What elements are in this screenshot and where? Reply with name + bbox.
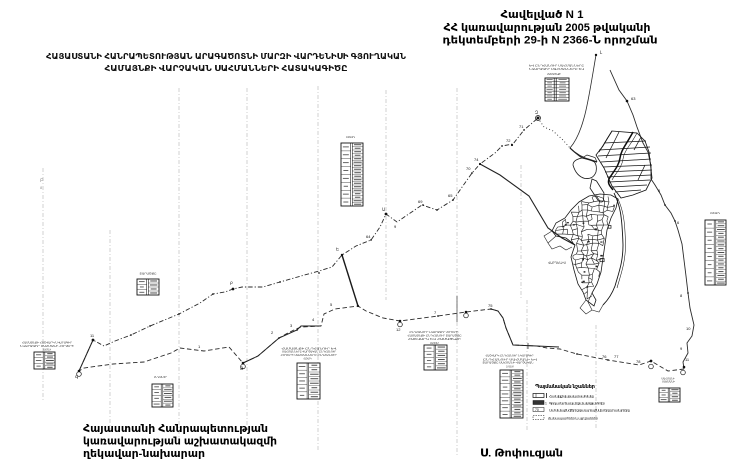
svg-text:70: 70 — [535, 408, 539, 412]
svg-text:64: 64 — [366, 234, 371, 239]
svg-text:76: 76 — [602, 354, 607, 359]
svg-text:Գ: Գ — [75, 375, 78, 380]
svg-text:կառավարության աշխատակազմի: կառավարության աշխատակազմի — [83, 436, 277, 448]
svg-text:ԸՆԴՀԱՆՈՒՐ: ԸՆԴՀԱՆՈՒՐ — [506, 364, 514, 368]
svg-text:70: 70 — [466, 166, 471, 171]
svg-text:75: 75 — [488, 303, 493, 308]
svg-text:ՎԱՐԴԵՆԻՍ: ՎԱՐԴԵՆԻՍ — [548, 261, 567, 265]
svg-text:ԸՆԴՀԱՆՈՒՐ: ԸՆԴՀԱՆՈՒՐ — [154, 375, 167, 379]
svg-text:ՍԱՀՄԱՆԻ: ՍԱՀՄԱՆԻ — [43, 348, 51, 352]
svg-text:ՀԱՅԱՍՏԱՆԻ ՀԱՆՐԱՊԵՏՈՒԹՅԱՆ ԱՐԱԳԱ: ՀԱՅԱՍՏԱՆԻ ՀԱՆՐԱՊԵՏՈՒԹՅԱՆ ԱՐԱԳԱԾՈՏՆԻ ՄԱՐԶ… — [46, 52, 406, 61]
svg-text:ՀԱՇՎԱՐԿ: ՀԱՇՎԱՐԿ — [346, 135, 355, 139]
svg-text:1: 1 — [545, 402, 547, 406]
svg-text:Զ: Զ — [535, 110, 538, 115]
svg-text:10: 10 — [686, 326, 691, 331]
svg-text:71: 71 — [519, 124, 524, 129]
svg-text:ՏԱՐԱԾՔԸ ՍԱՀՄԱՆԻ ՎԱՐՉԱԿԱՆ: ՏԱՐԱԾՔԸ ՍԱՀՄԱՆԻ ՎԱՐՉԱԿԱՆ — [483, 361, 534, 365]
svg-text:9: 9 — [394, 224, 397, 229]
svg-text:11: 11 — [685, 357, 690, 362]
svg-text:ՀԱՄԱՅՆՔԻ ՀԱՇՎԱՐԿ ՆԿԱՐԱԳԻՐ: ՀԱՄԱՅՆՔԻ ՀԱՇՎԱՐԿ ՆԿԱՐԱԳԻՐ — [22, 341, 72, 345]
svg-text:ՏԱՐԱԾՔԸ: ՏԱՐԱԾՔԸ — [140, 271, 157, 275]
svg-text:6: 6 — [677, 220, 680, 225]
svg-text:Գյուղատնտեսական նշանակության հ: Գյուղատնտեսական նշանակության հողեր — [549, 402, 605, 406]
svg-text:65: 65 — [448, 193, 453, 198]
svg-text:ՀԱՇՎԱՐԿ ԵՎ ՀԱՄԱՅՆՔԻ: ՀԱՇՎԱՐԿ ԵՎ ՀԱՄԱՅՆՔԻ — [408, 337, 461, 341]
svg-text:72: 72 — [506, 138, 511, 143]
svg-text:1: 1 — [198, 344, 201, 349]
svg-text:Բ: Բ — [230, 281, 233, 286]
svg-text:ՀՀ կառավարության 2005 թվականի: ՀՀ կառավարության 2005 թվականի — [444, 22, 651, 34]
svg-text:8: 8 — [40, 185, 43, 190]
svg-text:ղեկավար-նախարար: ղեկավար-նախարար — [83, 448, 205, 460]
svg-text:77: 77 — [614, 354, 619, 359]
svg-text:5: 5 — [658, 188, 661, 193]
svg-text:11: 11 — [90, 333, 95, 338]
svg-text:Ա: Ա — [382, 207, 385, 212]
svg-text:4: 4 — [312, 317, 315, 322]
svg-text:Հավելված N 1: Հավելված N 1 — [501, 9, 584, 21]
svg-text:ՍԱՀՄԱՆԻ: ՍԱՀՄԱՆԻ — [430, 341, 439, 345]
svg-text:ՀԱՇՎԱՐԿ ԸՆԴՀԱՆՈՒՐ ՆԿԱՐԱԳԻՐ: ՀԱՇՎԱՐԿ ԸՆԴՀԱՆՈՒՐ ՆԿԱՐԱԳԻՐ — [486, 354, 534, 358]
svg-text:ՀԱՇՎԱՐԿ: ՀԱՇՎԱՐԿ — [710, 211, 720, 215]
svg-text:Լ: Լ — [600, 50, 603, 55]
svg-text:ԸՆԴՀԱՆՈՒՐ ՆԿԱՐԱԳԻՐ ՀՈՂԵՐԻ: ԸՆԴՀԱՆՈՒՐ ՆԿԱՐԱԳԻՐ ՀՈՂԵՐԻ — [410, 330, 459, 334]
svg-text:Սահմանային գծերի շրջադարձային: Սահմանային գծերի շրջադարձային կետերը և հ… — [549, 409, 630, 413]
svg-text:ԵՎ ԸՆԴՀԱՆՈՒՐ ՍԱՀՄԱՆՆԵՐԸ: ԵՎ ԸՆԴՀԱՆՈՒՐ ՍԱՀՄԱՆՆԵՐԸ — [529, 64, 584, 68]
svg-text:Ճանապարհներ և այլ նշաններ: Ճանապարհներ և այլ նշաններ — [548, 417, 598, 421]
svg-text:Թ: Թ — [240, 366, 244, 371]
svg-text:ՆԿԱՐԱԳԻՐ ՍԱՀՄԱՆԻ ՀՈՂԵՐԻ: ՆԿԱՐԱԳԻՐ ՍԱՀՄԱՆԻ ՀՈՂԵՐԻ — [20, 344, 74, 348]
svg-text:Բ: Բ — [40, 178, 44, 184]
svg-text:ՀԱՄԱՅՆՔԻ ԸՆԴՀԱՆՈՒՐ ՏԱՐԱԾՔԸ: ՀԱՄԱՅՆՔԻ ԸՆԴՀԱՆՈՒՐ ՏԱՐԱԾՔԸ — [408, 333, 462, 337]
svg-text:9: 9 — [680, 346, 683, 351]
svg-text:Պայմանական նշաններ: Պայմանական նշաններ — [535, 384, 595, 390]
svg-text:74: 74 — [474, 157, 479, 162]
svg-text:8: 8 — [680, 293, 683, 298]
svg-text:ՀՈՂԵՐԻ ՍԱՀՄԱՆՆԵՐԸ ԸՆԴՀԱՆՈՒՐ: ՀՈՂԵՐԻ ՍԱՀՄԱՆՆԵՐԸ ԸՆԴՀԱՆՈՒՐ — [281, 353, 337, 357]
svg-text:3: 3 — [290, 323, 293, 328]
svg-text:ՍԱՀՄԱՆԻ: ՍԱՀՄԱՆԻ — [662, 380, 675, 384]
svg-text:5: 5 — [330, 302, 333, 307]
svg-text:ՀԱՇՎԱՐԿ: ՀԱՇՎԱՐԿ — [304, 357, 312, 361]
svg-text:ՀԱՄԱՅՆՔԻ ԸՆԴՀԱՆՈՒՐ ԵՎ: ՀԱՄԱՅՆՔԻ ԸՆԴՀԱՆՈՒՐ ԵՎ — [282, 346, 337, 350]
svg-text:Ե: Ե — [336, 247, 339, 252]
svg-text:Հայաստանի Հանրապետության: Հայաստանի Հանրապետության — [83, 423, 268, 435]
svg-text:69: 69 — [418, 199, 423, 204]
svg-text:63: 63 — [631, 96, 636, 101]
svg-text:ՀԱՄԱՅՆՔԻ ՎԱՐՉԱԿԱՆ ՍԱՀՄԱՆՆԵՐԻ Հ: ՀԱՄԱՅՆՔԻ ՎԱՐՉԱԿԱՆ ՍԱՀՄԱՆՆԵՐԻ ՀԱՏԱԿԱԳԻԾԸ — [105, 64, 348, 73]
svg-text:2: 2 — [271, 330, 274, 335]
svg-text:ՆԿԱՐԱԳԻՐ ՍԱՀՄԱՆՆԵՐԸ ԵՎ: ՆԿԱՐԱԳԻՐ ՍԱՀՄԱՆՆԵՐԸ ԵՎ — [529, 67, 584, 71]
svg-text:Ս. Թոփուզյան: Ս. Թոփուզյան — [480, 448, 563, 460]
svg-text:7: 7 — [434, 310, 437, 315]
svg-text:ՀԱՄԱՅՆՔԻ: ՀԱՄԱՅՆՔԻ — [547, 72, 561, 76]
svg-text:78: 78 — [636, 359, 641, 364]
svg-text:12: 12 — [396, 327, 401, 332]
svg-text:դեկտեմբերի 29-ի N 2366-Ն որոշմ: դեկտեմբերի 29-ի N 2366-Ն որոշման — [443, 35, 658, 47]
svg-text:Համայնքի վարչական սահմանը: Համայնքի վարչական սահմանը — [549, 395, 594, 399]
